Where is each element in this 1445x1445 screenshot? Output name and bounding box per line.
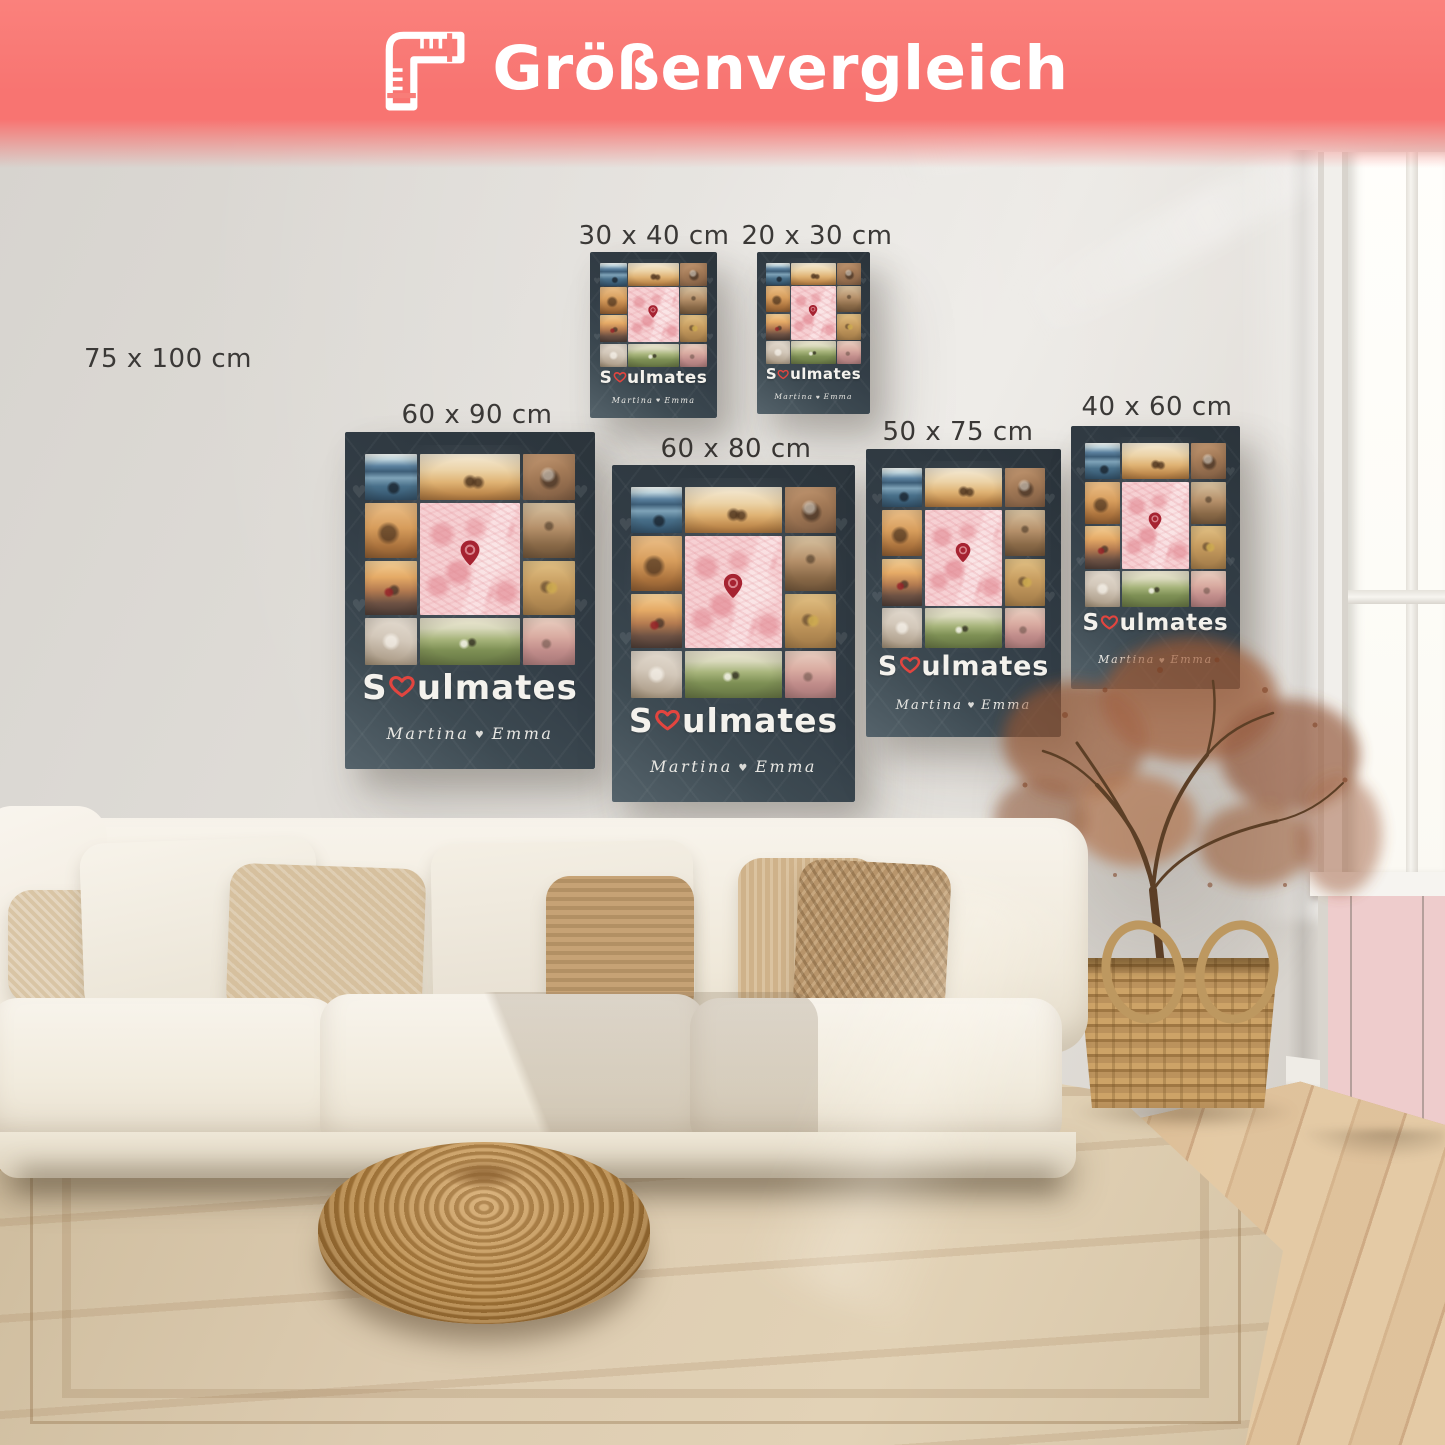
name-left: Martina xyxy=(774,392,813,401)
location-pin-icon xyxy=(809,304,818,315)
photo-couple-kissing-yellow xyxy=(680,315,707,342)
photo-couple-rocks xyxy=(680,287,707,314)
poster-60x90: ♥ ♥ ♥ ♥ S ulmates xyxy=(345,432,595,769)
title-rest: ulmates xyxy=(627,368,707,388)
soulmates-poster: ♥ ♥ ♥ ♥ S ulmates xyxy=(590,252,717,418)
photo-collage xyxy=(631,487,835,698)
location-pin-icon xyxy=(649,305,659,318)
photo-couple-kissing-yellow xyxy=(837,314,861,340)
photo-couple-sunset-field xyxy=(791,263,836,285)
heart-icon xyxy=(654,708,681,732)
small-heart-icon: ♥ xyxy=(469,730,491,741)
photo-couple-embrace xyxy=(631,536,682,591)
name-right: Emma xyxy=(755,757,817,776)
photo-couple-cuddling xyxy=(766,341,790,363)
small-heart-icon: ♥ xyxy=(813,396,823,401)
photo-couple-pier xyxy=(523,618,575,664)
city-map xyxy=(685,536,782,648)
photo-couple-dancing-field xyxy=(791,341,836,363)
wicker-pouf xyxy=(318,1142,650,1324)
photo-couple-dancing-field xyxy=(420,618,520,664)
photo-couple-lake xyxy=(766,263,790,285)
photo-couple-kissing xyxy=(1191,443,1226,479)
title-lead: S xyxy=(629,701,654,740)
couple-names: Martina♥Emma xyxy=(345,724,595,743)
soulmates-poster: ♥ ♥ ♥ ♥ S ulmates xyxy=(612,465,855,802)
photo-couple-rocks xyxy=(1191,482,1226,525)
photo-couple-lake xyxy=(1085,443,1120,479)
couple-names: Martina♥Emma xyxy=(757,392,870,401)
soulmates-poster: ♥ ♥ ♥ ♥ S ulmates xyxy=(757,252,870,414)
size-label-50x75: 50 x 75 cm xyxy=(883,417,1034,447)
pattern-heart-icon: ♥ xyxy=(573,597,589,617)
photo-couple-lake xyxy=(600,263,627,286)
name-right: Emma xyxy=(824,392,853,401)
photo-couple-rocks xyxy=(837,286,861,312)
photo-couple-rocks xyxy=(1005,510,1046,557)
location-pin-icon xyxy=(461,540,480,565)
photo-couple-beach-sunset xyxy=(882,559,923,606)
title-rest: ulmates xyxy=(790,365,861,383)
couple-names: Martina♥Emma xyxy=(612,757,855,776)
title-lead: S xyxy=(766,365,777,383)
photo-couple-cuddling xyxy=(631,651,682,697)
name-left: Martina xyxy=(650,757,733,776)
photo-couple-kissing xyxy=(523,454,575,500)
size-label-60x90: 60 x 90 cm xyxy=(402,400,553,430)
photo-couple-sunset-field xyxy=(925,468,1003,508)
photo-couple-kissing xyxy=(785,487,836,533)
photo-couple-dancing-field xyxy=(685,651,782,697)
window-mullion xyxy=(1406,152,1418,878)
photo-couple-rocks xyxy=(523,503,575,558)
photo-couple-embrace xyxy=(600,287,627,314)
size-label-40x60: 40 x 60 cm xyxy=(1082,392,1233,422)
soulmates-title: S ulmates xyxy=(345,668,595,708)
photo-couple-embrace xyxy=(365,503,417,558)
photo-couple-sunset-field xyxy=(1122,443,1189,479)
photo-couple-lake xyxy=(631,487,682,533)
photo-couple-beach-sunset xyxy=(365,561,417,615)
header-banner: Größenvergleich xyxy=(0,0,1445,168)
pattern-heart-icon: ♥ xyxy=(1225,465,1236,479)
name-right: Emma xyxy=(664,396,695,405)
small-heart-icon: ♥ xyxy=(733,763,755,774)
photo-couple-sunset-field xyxy=(628,263,679,286)
photo-couple-kissing-yellow xyxy=(1191,526,1226,569)
photo-couple-embrace xyxy=(882,510,923,557)
size-label-60x80: 60 x 80 cm xyxy=(661,434,812,464)
cabinet-door-seam xyxy=(1422,896,1424,1121)
city-map xyxy=(628,287,679,342)
photo-couple-lake xyxy=(365,454,417,500)
photo-couple-sunset-field xyxy=(420,454,520,500)
heart-icon xyxy=(388,674,416,699)
photo-couple-rocks xyxy=(785,536,836,591)
size-label-75x100: 75 x 100 cm xyxy=(84,344,252,374)
poster-60x80: ♥ ♥ ♥ ♥ S ulmates xyxy=(612,465,855,802)
photo-collage xyxy=(365,454,575,665)
photo-couple-lake xyxy=(882,468,923,508)
photo-couple-dancing-field xyxy=(628,344,679,367)
photo-collage xyxy=(1085,443,1227,607)
size-label-20x30: 20 x 30 cm xyxy=(742,221,893,251)
photo-couple-cuddling xyxy=(600,344,627,367)
photo-couple-cuddling xyxy=(882,608,923,648)
size-comparison-scene: 75 x 100 cm 30 x 40 cm 20 x 30 cm 60 x 9… xyxy=(0,0,1445,1445)
pattern-heart-icon: ♥ xyxy=(573,483,589,503)
soulmates-poster: ♥ ♥ ♥ ♥ S ulmates xyxy=(345,432,595,769)
photo-couple-beach-sunset xyxy=(600,315,627,342)
photo-couple-embrace xyxy=(766,286,790,312)
title-rest: ulmates xyxy=(417,668,578,708)
small-heart-icon: ♥ xyxy=(653,398,664,404)
location-pin-icon xyxy=(956,543,971,563)
pattern-heart-icon: ♥ xyxy=(706,333,714,343)
couple-names: Martina♥Emma xyxy=(590,396,717,405)
title-lead: S xyxy=(878,651,898,682)
page-title: Größenvergleich xyxy=(493,33,1069,104)
photo-couple-cuddling xyxy=(365,618,417,664)
cabinet-floor-shadow xyxy=(1300,1130,1445,1160)
photo-couple-pier xyxy=(680,344,707,367)
poster-30x40: ♥ ♥ ♥ ♥ S ulmates xyxy=(590,252,717,418)
size-label-30x40: 30 x 40 cm xyxy=(579,221,730,251)
soulmates-title: S ulmates xyxy=(612,701,855,740)
photo-couple-beach-sunset xyxy=(766,314,790,340)
photo-couple-embrace xyxy=(1085,482,1120,525)
name-right: Emma xyxy=(492,724,554,743)
title-rest: ulmates xyxy=(682,701,838,740)
photo-couple-sunset-field xyxy=(685,487,782,533)
photo-collage xyxy=(766,263,861,364)
city-map xyxy=(1122,482,1189,569)
title-lead: S xyxy=(600,368,613,388)
poster-20x30: ♥ ♥ ♥ ♥ S ulmates xyxy=(757,252,870,414)
ruler-icon xyxy=(377,23,467,113)
name-left: Martina xyxy=(386,724,469,743)
location-pin-icon xyxy=(1149,512,1162,529)
soulmates-title: S ulmates xyxy=(590,368,717,388)
heart-icon xyxy=(613,371,627,384)
soulmates-title: S ulmates xyxy=(757,365,870,383)
city-map xyxy=(791,286,836,340)
photo-couple-pier xyxy=(837,341,861,363)
photo-couple-kissing-yellow xyxy=(785,594,836,648)
heart-icon xyxy=(777,369,789,380)
photo-couple-pier xyxy=(785,651,836,697)
pattern-heart-icon: ♥ xyxy=(1225,555,1236,569)
name-left: Martina xyxy=(896,698,963,713)
photo-couple-kissing xyxy=(1005,468,1046,508)
location-pin-icon xyxy=(724,574,742,599)
header-content: Größenvergleich xyxy=(377,22,1069,114)
title-lead: S xyxy=(362,668,388,708)
photo-couple-kissing xyxy=(837,263,861,285)
pattern-heart-icon: ♥ xyxy=(706,277,714,287)
photo-collage xyxy=(600,263,707,367)
name-left: Martina xyxy=(612,396,653,405)
photo-couple-kissing-yellow xyxy=(523,561,575,615)
city-map xyxy=(420,503,520,615)
photo-couple-kissing xyxy=(680,263,707,286)
photo-couple-beach-sunset xyxy=(631,594,682,648)
heart-icon xyxy=(899,655,921,675)
photo-couple-beach-sunset xyxy=(1085,526,1120,569)
